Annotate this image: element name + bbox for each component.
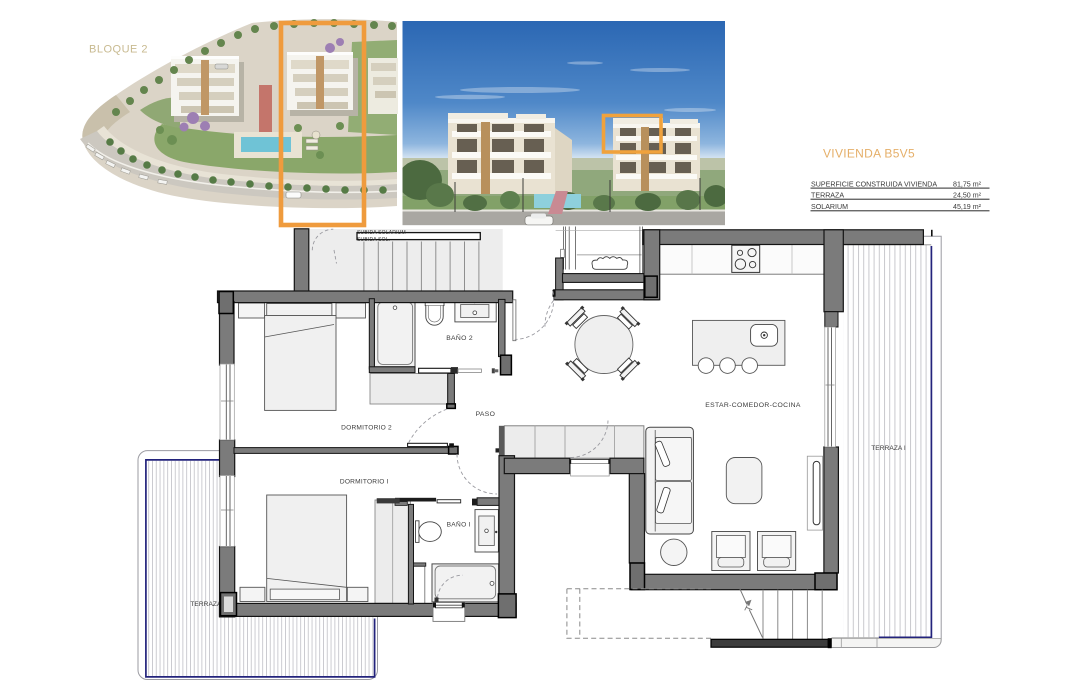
svg-text:45,19 m²: 45,19 m² — [953, 203, 982, 211]
svg-text:TERRAZA I: TERRAZA I — [871, 445, 906, 452]
svg-text:SUBIDA SOL.: SUBIDA SOL. — [357, 237, 390, 243]
svg-text:SOLARIUM: SOLARIUM — [811, 203, 848, 211]
svg-text:ESTAR-COMEDOR-COCINA: ESTAR-COMEDOR-COCINA — [705, 402, 801, 409]
svg-text:SUPERFICIE CONSTRUIDA VIVIENDA: SUPERFICIE CONSTRUIDA VIVIENDA — [811, 181, 937, 189]
svg-text:VIVIENDA B5V5: VIVIENDA B5V5 — [823, 147, 915, 161]
svg-text:BLOQUE 2: BLOQUE 2 — [89, 44, 148, 56]
svg-text:PASO: PASO — [476, 411, 496, 418]
svg-text:SUBIDA SOLARIUM: SUBIDA SOLARIUM — [357, 230, 406, 236]
svg-text:81,75 m²: 81,75 m² — [953, 181, 982, 189]
svg-text:TERRAZA: TERRAZA — [811, 192, 844, 200]
svg-text:DORMITORIO 2: DORMITORIO 2 — [341, 424, 392, 431]
svg-text:DORMITORIO I: DORMITORIO I — [340, 479, 389, 486]
svg-text:BAÑO 2: BAÑO 2 — [446, 333, 473, 342]
svg-text:24,50 m²: 24,50 m² — [953, 192, 982, 200]
svg-text:BAÑO I: BAÑO I — [447, 519, 471, 528]
